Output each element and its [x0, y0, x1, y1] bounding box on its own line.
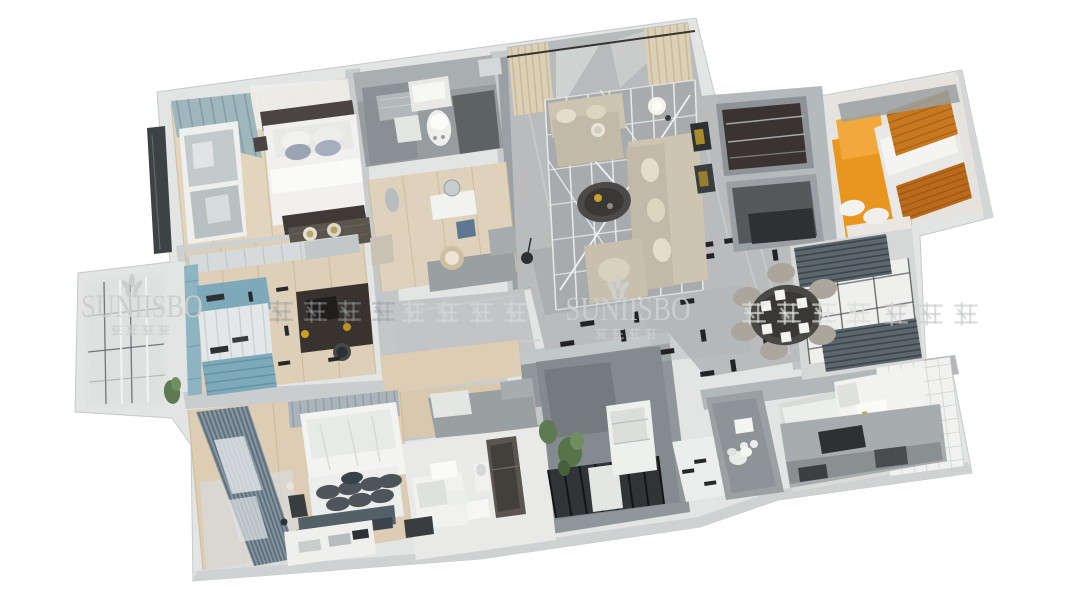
- svg-text:SUNIISBO: SUNIISBO: [565, 290, 690, 328]
- svg-text:SUNIISBO: SUNIISBO: [81, 288, 203, 324]
